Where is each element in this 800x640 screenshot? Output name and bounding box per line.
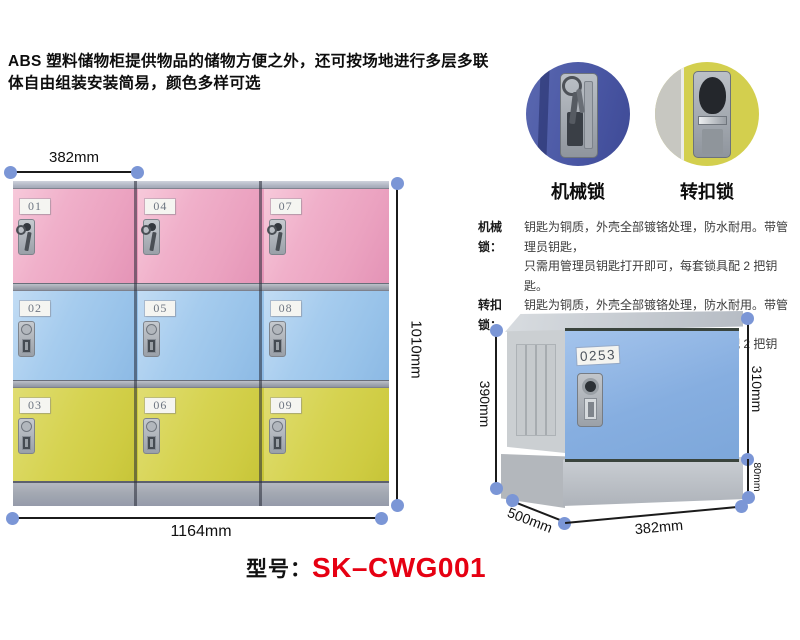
door-number-label: 0253 xyxy=(577,346,620,365)
dim-right-label: 1010mm xyxy=(408,318,425,382)
dim-bottom-label: 1164mm xyxy=(13,523,389,541)
door-key-lock-icon xyxy=(18,219,35,255)
locker-door-07: 07 xyxy=(264,189,389,283)
description-line: 钥匙为铜质，外壳全部镀铬处理，防水耐用。带管理员钥匙， xyxy=(524,218,798,257)
lock-clasp xyxy=(698,116,727,125)
dimension-dot xyxy=(490,324,503,337)
door-number-label: 06 xyxy=(145,398,175,413)
dimension-dot xyxy=(490,482,503,495)
dimension-line-390 xyxy=(495,330,497,488)
model-number: 型号： SK–CWG001 xyxy=(246,552,486,584)
locker-door-08: 08 xyxy=(264,291,389,380)
intro-line-2: 体自由组装安装简易，颜色多样可选 xyxy=(8,73,498,95)
door-lock-icon xyxy=(269,418,286,454)
door-frame-strip xyxy=(655,62,684,166)
lock-slot xyxy=(584,398,597,420)
turn-knob-icon xyxy=(699,77,726,114)
side-panel-grooves xyxy=(516,344,556,436)
column-separator xyxy=(259,181,262,506)
main-locker-image: 01 04 07 02 05 08 xyxy=(13,181,389,506)
locker-row-blue: 02 05 08 xyxy=(13,291,389,380)
dimension-dot xyxy=(131,166,144,179)
cube-side-panel xyxy=(507,330,565,453)
door-lock-icon xyxy=(143,321,160,357)
dimension-dot xyxy=(391,177,404,190)
locker-divider xyxy=(13,380,389,388)
locker-door-02: 02 xyxy=(13,291,138,380)
door-number-label: 02 xyxy=(20,301,50,316)
door-number-label: 03 xyxy=(20,398,50,413)
door-key-lock-icon xyxy=(269,219,286,255)
locker-door-06: 06 xyxy=(138,388,263,481)
description-text: 钥匙为铜质，外壳全部镀铬处理，防水耐用。带管理员钥匙， 只需用管理员钥匙打开即可… xyxy=(524,218,798,296)
turnbuckle-lock-icon xyxy=(693,71,731,158)
dimension-line-bottom xyxy=(12,517,382,519)
locker-row-pink: 01 04 07 xyxy=(13,189,389,283)
mechanical-lock-icon xyxy=(560,73,598,158)
dimension-dot xyxy=(735,500,748,513)
locker-door-09: 09 xyxy=(264,388,389,481)
dim-390-label: 390mm xyxy=(477,374,493,434)
lock-recess xyxy=(702,129,723,154)
locker-door-04: 04 xyxy=(138,189,263,283)
locker-divider xyxy=(13,283,389,291)
locker-door-01: 01 xyxy=(13,189,138,283)
locker-base xyxy=(13,481,389,506)
intro-line-1: ABS 塑料储物柜提供物品的储物方便之外，还可按场地进行多层多联 xyxy=(8,51,498,73)
dimension-dot xyxy=(391,499,404,512)
dim-top-label: 382mm xyxy=(24,149,124,166)
lock-plate-slot xyxy=(584,81,593,149)
mechanical-lock-photo xyxy=(526,62,630,166)
door-number-label: 04 xyxy=(145,199,175,214)
dim-382-label: 382mm xyxy=(625,517,692,539)
door-lock-icon xyxy=(143,418,160,454)
mechanical-lock-description: 机械锁： 钥匙为铜质，外壳全部镀铬处理，防水耐用。带管理员钥匙， 只需用管理员钥… xyxy=(478,218,798,296)
door-number-label: 08 xyxy=(271,301,301,316)
lock-knob-icon xyxy=(582,378,599,395)
turnbuckle-lock-photo xyxy=(655,62,759,166)
locker-row-yellow: 03 06 09 xyxy=(13,388,389,481)
door-lock-icon xyxy=(18,321,35,357)
door-number-label: 01 xyxy=(20,199,50,214)
door-lock-icon xyxy=(18,418,35,454)
dim-80-label: 80mm xyxy=(751,457,763,497)
dimension-dot xyxy=(741,312,754,325)
single-locker-door: 0253 xyxy=(565,328,739,462)
turnbuckle-lock-caption: 转扣锁 xyxy=(655,178,759,204)
door-number-label: 09 xyxy=(271,398,301,413)
mechanical-lock-caption: 机械锁 xyxy=(526,178,630,204)
locker-top-cap xyxy=(13,181,389,189)
locker-door-03: 03 xyxy=(13,388,138,481)
dimension-line-right xyxy=(396,183,398,505)
model-value: SK–CWG001 xyxy=(312,552,486,584)
dim-310-label: 310mm xyxy=(749,358,765,420)
product-catalog-page: ABS 塑料储物柜提供物品的储物方便之外，还可按场地进行多层多联 体自由组装安装… xyxy=(0,0,800,640)
column-separator xyxy=(134,181,137,506)
dimension-dot xyxy=(4,166,17,179)
cube-base-front xyxy=(563,457,743,506)
description-line: 只需用管理员钥匙打开即可，每套锁具配 2 把钥匙。 xyxy=(524,257,798,296)
intro-text: ABS 塑料储物柜提供物品的储物方便之外，还可按场地进行多层多联 体自由组装安装… xyxy=(8,51,498,95)
model-label: 型号： xyxy=(246,553,312,583)
door-number-label: 05 xyxy=(145,301,175,316)
description-label: 机械锁： xyxy=(478,218,524,296)
door-lock-icon xyxy=(577,373,603,427)
door-edge-shadow xyxy=(537,62,550,166)
door-key-lock-icon xyxy=(143,219,160,255)
door-lock-icon xyxy=(269,321,286,357)
door-number-label: 07 xyxy=(271,199,301,214)
dimension-line-top xyxy=(10,171,138,173)
locker-door-05: 05 xyxy=(138,291,263,380)
